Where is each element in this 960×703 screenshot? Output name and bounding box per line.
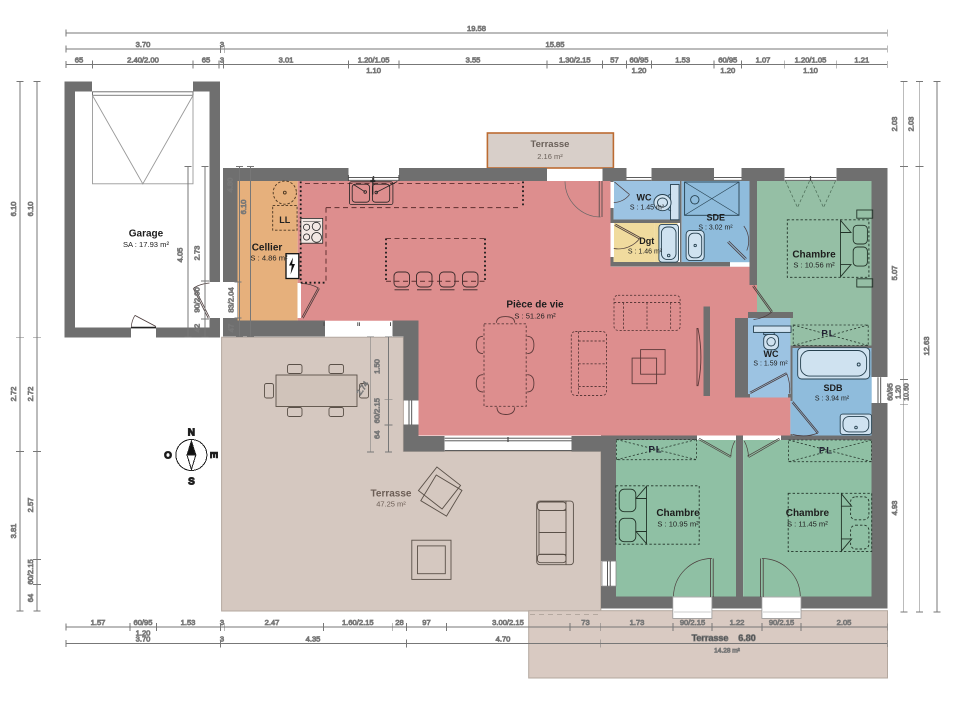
svg-text:3.70: 3.70 <box>136 634 151 643</box>
svg-text:1.21: 1.21 <box>854 55 869 64</box>
svg-text:PL: PL <box>648 445 662 456</box>
svg-text:Cellier: Cellier <box>252 243 283 254</box>
svg-text:6.10: 6.10 <box>9 202 18 217</box>
svg-text:1.50: 1.50 <box>373 359 382 374</box>
svg-text:1.73: 1.73 <box>630 618 645 627</box>
svg-text:N: N <box>188 428 195 439</box>
svg-text:6.10: 6.10 <box>239 200 248 215</box>
svg-text:4.35: 4.35 <box>306 634 321 643</box>
svg-text:E: E <box>208 452 219 459</box>
svg-text:60/95: 60/95 <box>629 55 648 64</box>
svg-text:S : 10.95 m²: S : 10.95 m² <box>657 520 699 529</box>
svg-text:2.16 m²: 2.16 m² <box>537 152 563 161</box>
svg-text:4.80: 4.80 <box>226 178 235 193</box>
svg-text:65: 65 <box>202 55 210 64</box>
svg-text:WC: WC <box>637 193 652 203</box>
svg-text:S : 1.45 m²: S : 1.45 m² <box>630 205 665 212</box>
svg-text:2.57: 2.57 <box>26 498 35 513</box>
svg-text:60/2.15: 60/2.15 <box>373 398 382 423</box>
svg-text:6.80: 6.80 <box>738 633 756 643</box>
svg-text:Dgt: Dgt <box>639 236 654 246</box>
svg-text:PL: PL <box>821 329 835 340</box>
svg-text:Terrasse: Terrasse <box>692 633 729 643</box>
svg-text:S : 10.56 m²: S : 10.56 m² <box>793 261 835 270</box>
svg-text:2.40/2.00: 2.40/2.00 <box>127 55 159 64</box>
svg-text:3.81: 3.81 <box>9 524 18 539</box>
svg-text:Chambre: Chambre <box>656 508 700 519</box>
svg-text:O: O <box>164 451 172 462</box>
svg-text:19.58: 19.58 <box>467 24 486 33</box>
svg-text:2.47: 2.47 <box>265 618 280 627</box>
svg-text:97: 97 <box>422 618 430 627</box>
svg-text:3: 3 <box>220 40 224 49</box>
svg-text:S : 4.86 m²: S : 4.86 m² <box>250 254 288 263</box>
svg-text:4.70: 4.70 <box>496 634 511 643</box>
svg-text:S : 1.59 m²: S : 1.59 m² <box>753 361 788 368</box>
svg-text:64: 64 <box>373 431 382 439</box>
svg-text:1.20: 1.20 <box>632 66 647 75</box>
svg-text:Chambre: Chambre <box>786 508 830 519</box>
svg-text:1.07: 1.07 <box>756 55 771 64</box>
svg-text:1.20: 1.20 <box>896 385 903 399</box>
svg-text:14.28 m²: 14.28 m² <box>714 648 740 655</box>
svg-text:LL: LL <box>279 215 290 225</box>
svg-text:1.30/2.15: 1.30/2.15 <box>559 55 591 64</box>
svg-text:1.20/1.05: 1.20/1.05 <box>795 55 827 64</box>
svg-text:3: 3 <box>220 634 224 643</box>
svg-text:SDE: SDE <box>706 213 725 223</box>
svg-text:3.70: 3.70 <box>136 40 151 49</box>
svg-text:2.72: 2.72 <box>9 387 18 402</box>
svg-text:4.93: 4.93 <box>890 501 899 516</box>
svg-text:PL: PL <box>819 446 833 457</box>
svg-text:3.00/2.15: 3.00/2.15 <box>492 618 524 627</box>
svg-text:1.10: 1.10 <box>366 66 381 75</box>
svg-text:1.20/1.05: 1.20/1.05 <box>358 55 390 64</box>
svg-text:60/95: 60/95 <box>888 383 895 401</box>
svg-text:4.05: 4.05 <box>176 248 185 263</box>
svg-text:S : 3.94 m²: S : 3.94 m² <box>815 396 850 403</box>
svg-text:S: S <box>188 477 195 488</box>
svg-text:65: 65 <box>75 55 83 64</box>
svg-text:3.01: 3.01 <box>279 55 294 64</box>
svg-text:S : 51.26 m²: S : 51.26 m² <box>514 312 556 321</box>
svg-text:3.55: 3.55 <box>466 55 481 64</box>
svg-text:1.20: 1.20 <box>720 66 735 75</box>
svg-text:83/2.04: 83/2.04 <box>227 287 236 312</box>
svg-text:90/2.15: 90/2.15 <box>769 618 794 627</box>
svg-text:12.63: 12.63 <box>922 336 931 355</box>
svg-text:1.10: 1.10 <box>803 66 818 75</box>
svg-text:2.73: 2.73 <box>193 246 202 261</box>
svg-text:2.05: 2.05 <box>837 618 852 627</box>
svg-text:1.53: 1.53 <box>675 55 690 64</box>
svg-text:Chambre: Chambre <box>792 250 836 261</box>
svg-text:SDB: SDB <box>823 383 843 393</box>
svg-text:3: 3 <box>220 618 224 627</box>
svg-text:2.03: 2.03 <box>890 117 899 132</box>
svg-text:1.57: 1.57 <box>91 618 106 627</box>
svg-text:57: 57 <box>610 55 618 64</box>
svg-text:2.72: 2.72 <box>26 387 35 402</box>
svg-text:90/2.15: 90/2.15 <box>680 618 705 627</box>
svg-text:42: 42 <box>193 324 202 332</box>
svg-text:60/95: 60/95 <box>133 618 152 627</box>
svg-text:64: 64 <box>26 594 35 602</box>
svg-text:Garage: Garage <box>129 229 164 240</box>
svg-text:S : 1.46 m²: S : 1.46 m² <box>628 249 663 256</box>
svg-text:5.07: 5.07 <box>890 266 899 281</box>
svg-text:47.25 m²: 47.25 m² <box>376 500 406 509</box>
svg-text:Terrasse: Terrasse <box>531 139 570 150</box>
svg-text:1.60/2.15: 1.60/2.15 <box>342 618 374 627</box>
svg-text:SA : 17.93 m²: SA : 17.93 m² <box>123 240 169 249</box>
svg-text:3: 3 <box>220 55 224 64</box>
svg-text:47: 47 <box>227 324 236 332</box>
svg-text:28: 28 <box>395 618 403 627</box>
svg-text:Terrasse: Terrasse <box>371 489 412 500</box>
svg-text:WC: WC <box>764 349 779 359</box>
svg-text:60/95: 60/95 <box>718 55 737 64</box>
svg-text:73: 73 <box>581 618 589 627</box>
svg-text:1.22: 1.22 <box>730 618 745 627</box>
svg-text:1.53: 1.53 <box>181 618 196 627</box>
svg-text:Pièce de vie: Pièce de vie <box>506 300 564 311</box>
svg-text:90/2.00: 90/2.00 <box>193 287 202 312</box>
svg-text:60/2.15: 60/2.15 <box>26 559 35 584</box>
svg-text:S : 3.02 m²: S : 3.02 m² <box>698 225 733 232</box>
svg-text:6.10: 6.10 <box>26 202 35 217</box>
svg-text:10.60: 10.60 <box>904 383 911 401</box>
svg-text:2.03: 2.03 <box>906 117 915 132</box>
svg-text:15.85: 15.85 <box>545 40 564 49</box>
svg-text:S : 11.45 m²: S : 11.45 m² <box>787 520 828 529</box>
